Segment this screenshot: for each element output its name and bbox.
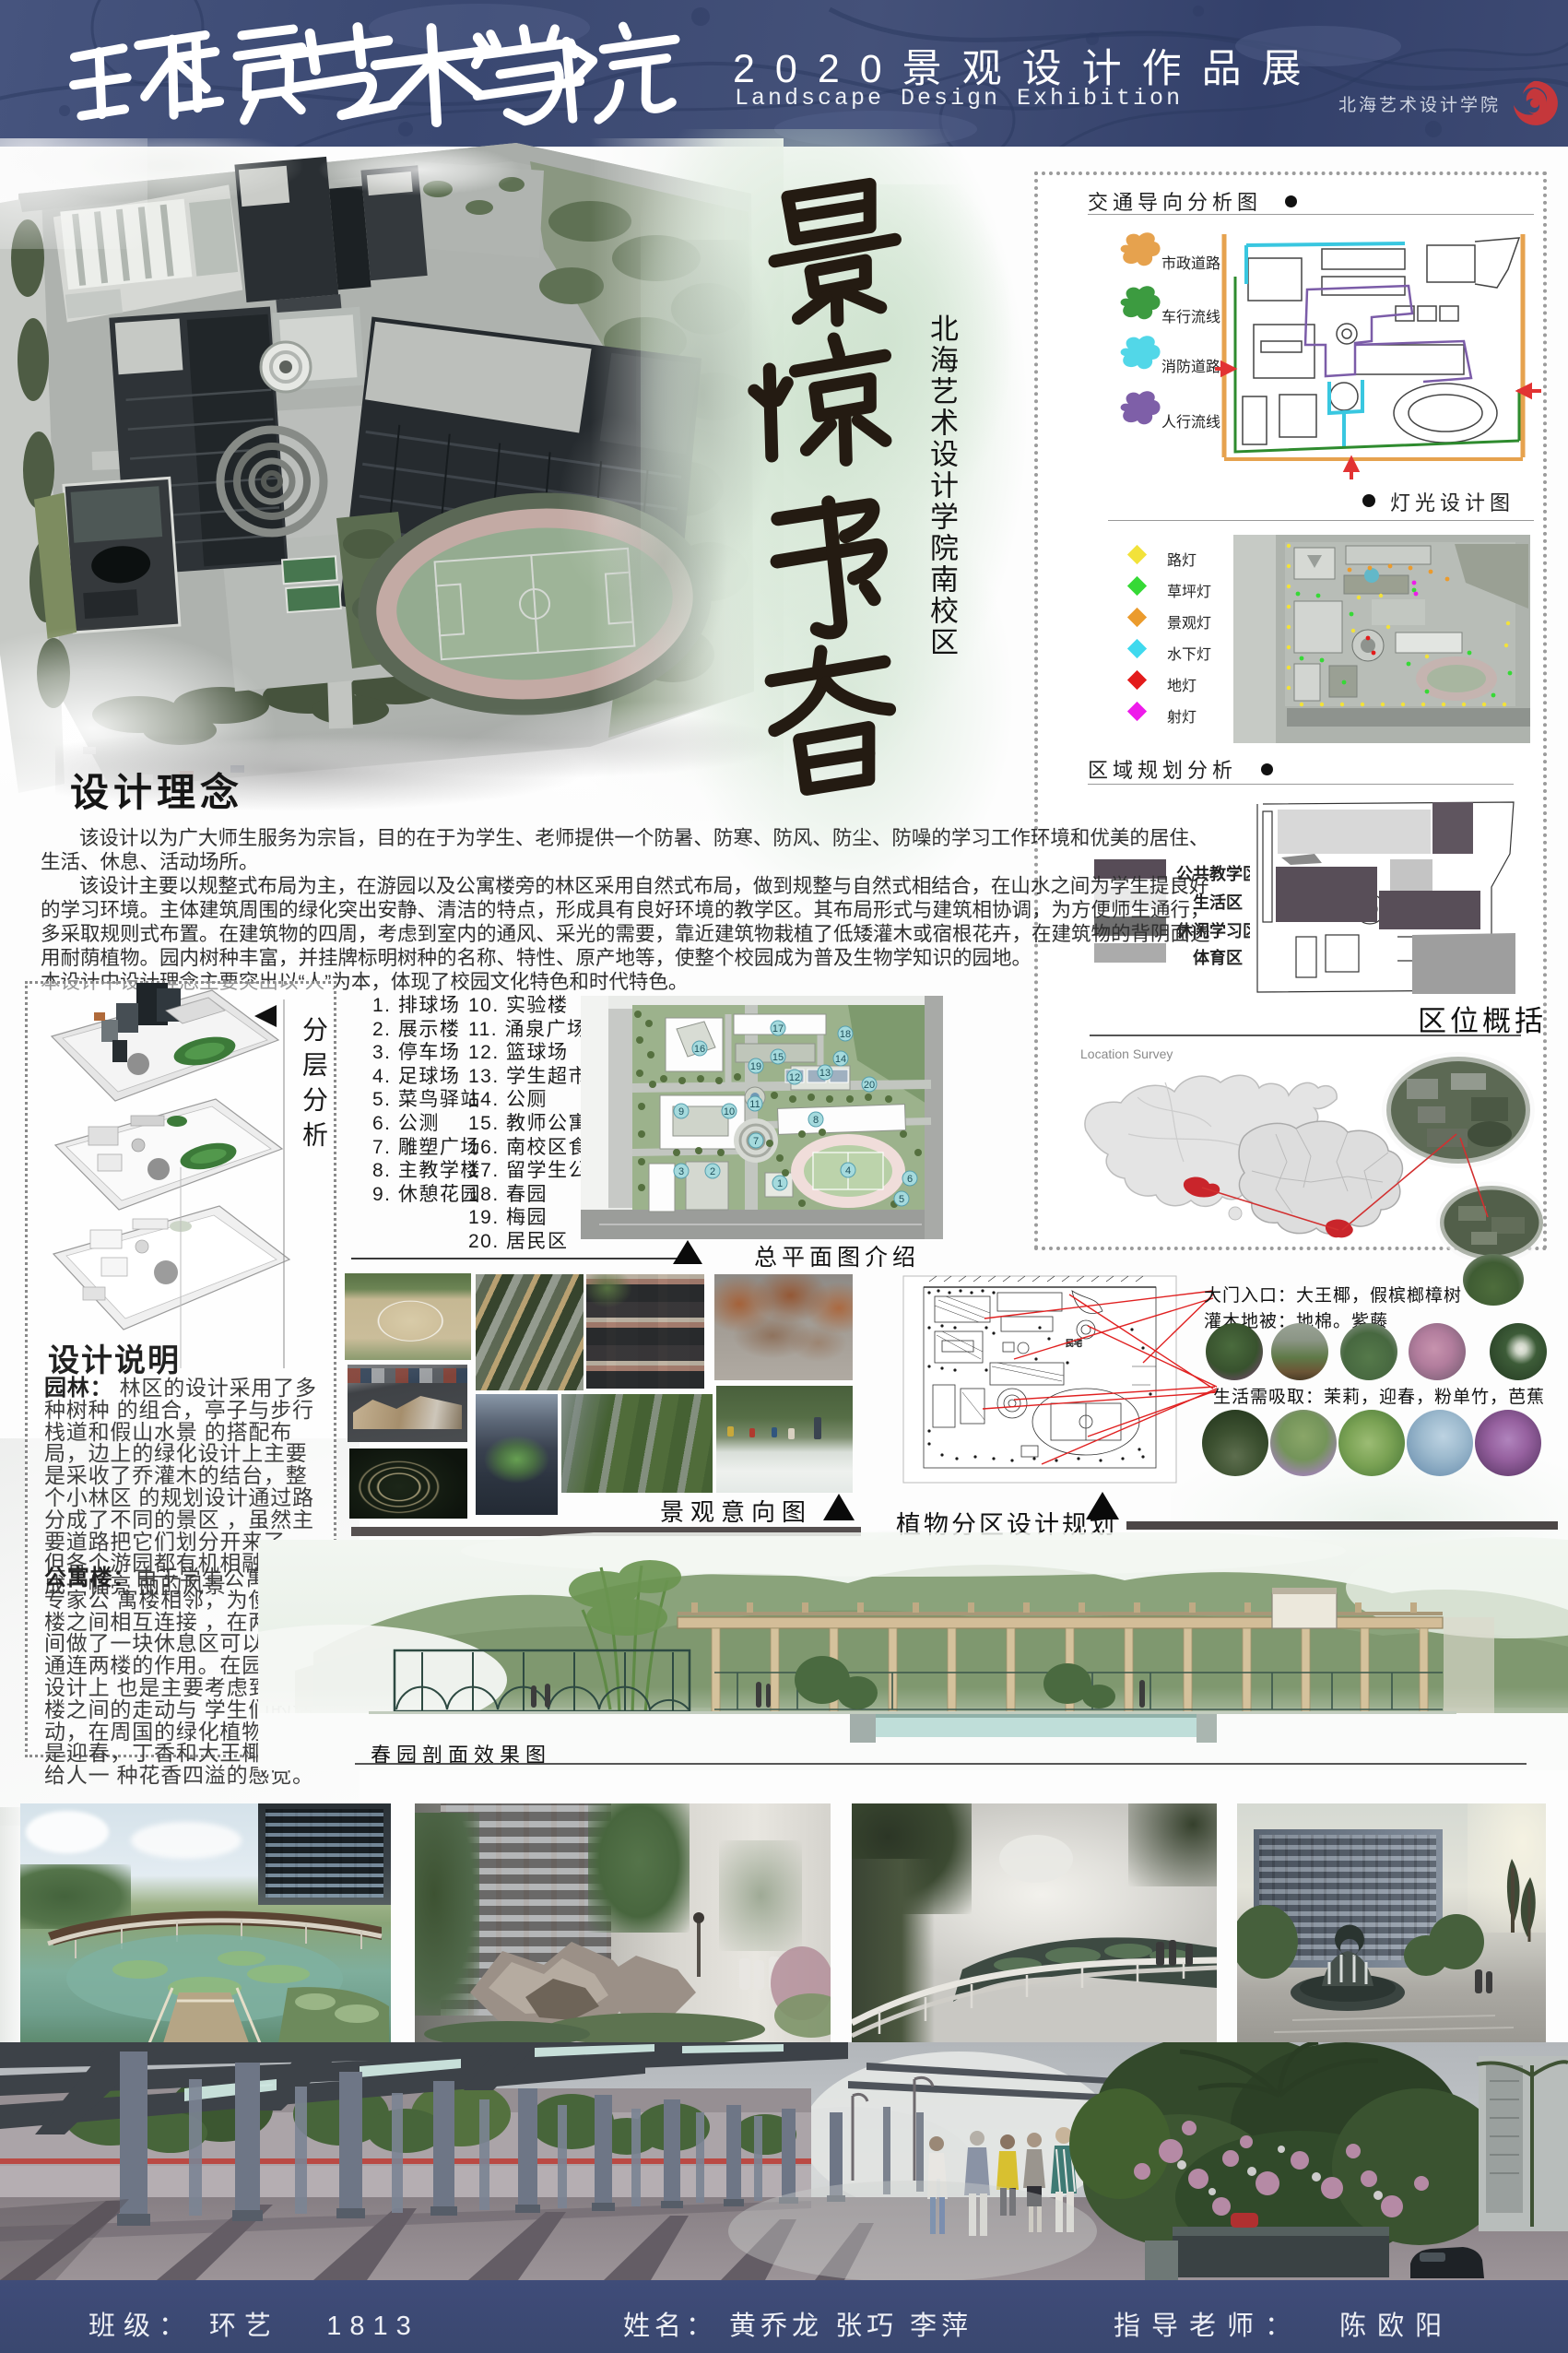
svg-text:6: 6	[907, 1174, 913, 1185]
svg-text:1: 1	[777, 1178, 783, 1189]
svg-text:民宅: 民宅	[1066, 1338, 1082, 1348]
svg-text:11: 11	[749, 1099, 760, 1110]
svg-text:13: 13	[819, 1068, 831, 1079]
svg-text:8: 8	[813, 1115, 819, 1126]
svg-text:3: 3	[678, 1166, 684, 1177]
svg-text:14: 14	[835, 1054, 846, 1065]
svg-text:15: 15	[772, 1052, 784, 1063]
svg-text:4: 4	[845, 1165, 851, 1176]
svg-text:16: 16	[694, 1044, 705, 1055]
svg-text:2: 2	[710, 1166, 715, 1177]
svg-text:17: 17	[772, 1023, 784, 1035]
svg-text:9: 9	[678, 1106, 684, 1117]
svg-text:Location Survey: Location Survey	[1080, 1046, 1173, 1061]
svg-text:12: 12	[789, 1072, 800, 1083]
svg-text:10: 10	[724, 1106, 735, 1117]
svg-text:20: 20	[864, 1080, 875, 1091]
svg-text:7: 7	[753, 1136, 759, 1147]
svg-text:5: 5	[899, 1194, 904, 1205]
svg-text:19: 19	[750, 1061, 761, 1072]
svg-text:18: 18	[840, 1029, 851, 1040]
